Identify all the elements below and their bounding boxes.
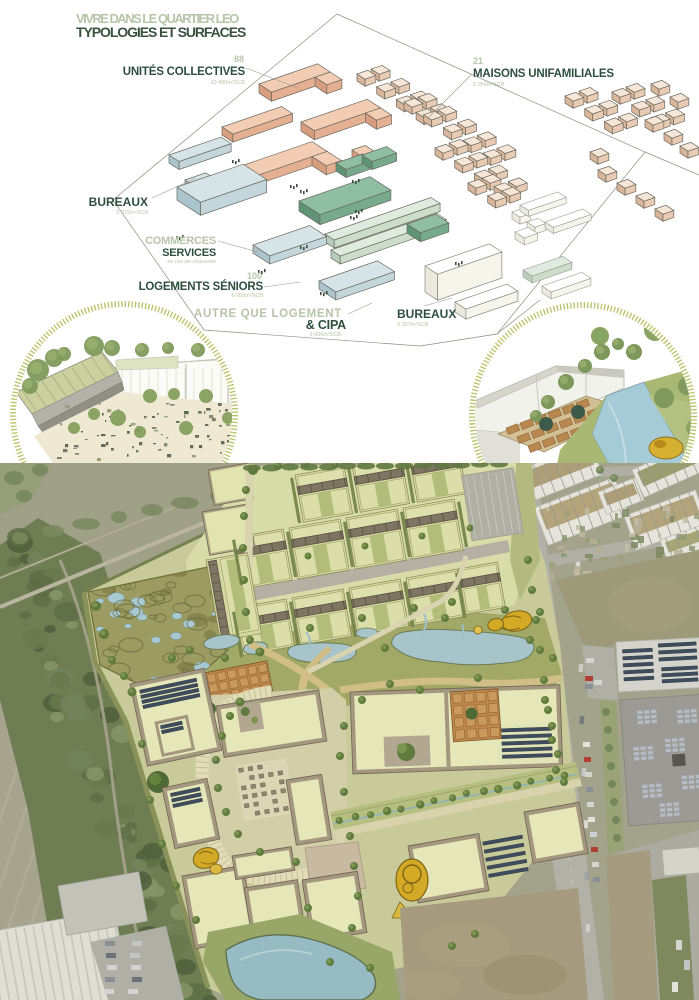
svg-text:& CIPA: & CIPA bbox=[306, 318, 346, 332]
svg-text:BUREAUX: BUREAUX bbox=[89, 195, 148, 209]
svg-text:en rez-de-chaussée: en rez-de-chaussée bbox=[167, 259, 216, 265]
svg-text:COMMERCES: COMMERCES bbox=[145, 235, 216, 247]
svg-text:5 059m²SCB: 5 059m²SCB bbox=[473, 82, 505, 88]
svg-text:UNITÉS COLLECTIVES: UNITÉS COLLECTIVES bbox=[123, 65, 246, 78]
svg-text:10 480m²SCB: 10 480m²SCB bbox=[210, 80, 245, 86]
svg-text:SERVICES: SERVICES bbox=[162, 247, 216, 259]
svg-text:LOGEMENTS SÉNIORS: LOGEMENTS SÉNIORS bbox=[139, 280, 264, 293]
svg-text:5 376m²SCB: 5 376m²SCB bbox=[117, 210, 149, 216]
svg-text:6 050m²SCB: 6 050m²SCB bbox=[232, 293, 264, 299]
svg-text:MAISONS UNIFAMILIALES: MAISONS UNIFAMILIALES bbox=[473, 68, 614, 80]
svg-text:100: 100 bbox=[247, 271, 262, 281]
svg-text:TYPOLOGIES ET SURFACES: TYPOLOGIES ET SURFACES bbox=[76, 24, 246, 40]
svg-text:88: 88 bbox=[234, 54, 244, 64]
svg-text:3 307m²SCB: 3 307m²SCB bbox=[397, 322, 429, 328]
svg-text:9 000m²SCB: 9 000m²SCB bbox=[310, 332, 342, 338]
svg-text:BUREAUX: BUREAUX bbox=[397, 307, 456, 321]
svg-text:21: 21 bbox=[473, 56, 483, 66]
